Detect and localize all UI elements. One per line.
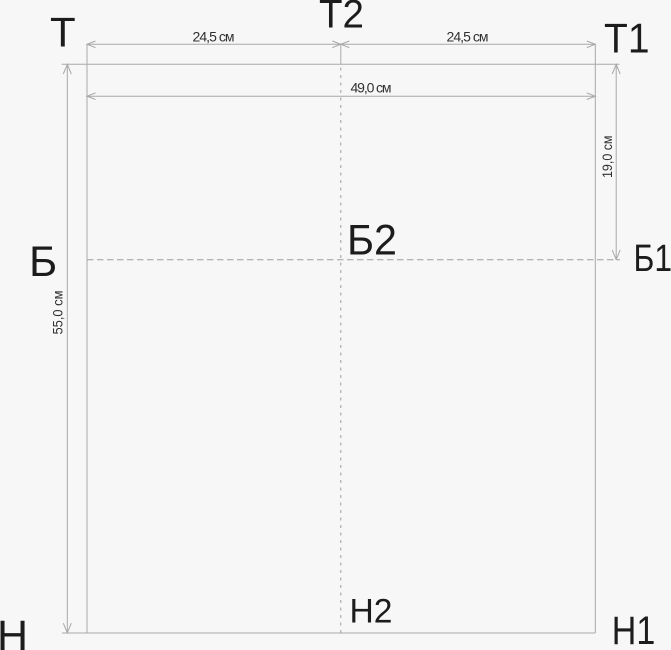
svg-text:Б1: Б1 bbox=[634, 238, 671, 280]
svg-text:19,0 см: 19,0 см bbox=[599, 136, 615, 179]
svg-text:49,0 см: 49,0 см bbox=[351, 80, 392, 96]
svg-text:Б: Б bbox=[29, 238, 57, 286]
svg-text:Т1: Т1 bbox=[604, 14, 650, 61]
svg-text:24,5 см: 24,5 см bbox=[193, 29, 235, 45]
svg-text:55,0 см: 55,0 см bbox=[50, 291, 66, 335]
svg-text:Т2: Т2 bbox=[319, 0, 364, 36]
svg-text:24,5 см: 24,5 см bbox=[447, 29, 489, 45]
svg-text:Н: Н bbox=[0, 612, 28, 650]
svg-text:Н1: Н1 bbox=[612, 609, 656, 650]
svg-text:Н2: Н2 bbox=[350, 592, 393, 630]
svg-text:Т: Т bbox=[50, 8, 76, 55]
svg-text:Б2: Б2 bbox=[347, 217, 397, 265]
